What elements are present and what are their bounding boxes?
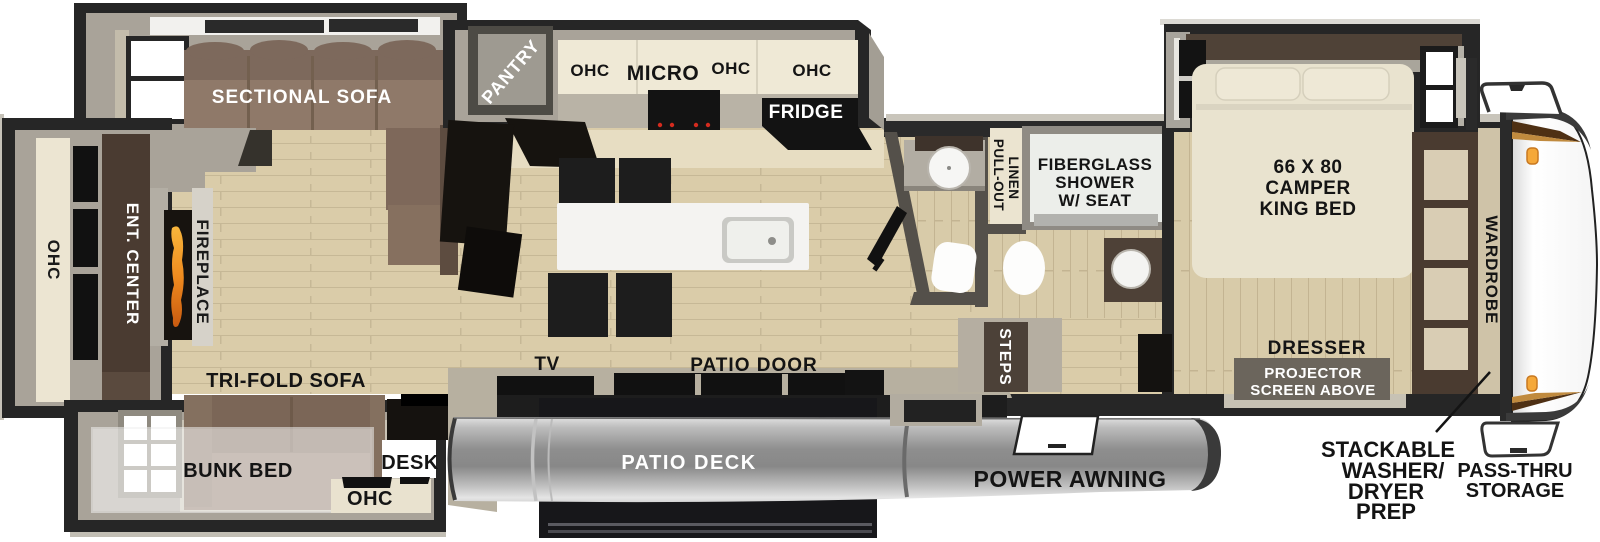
- svg-text:WARDROBE: WARDROBE: [1482, 215, 1501, 324]
- svg-text:STEPS: STEPS: [996, 328, 1013, 385]
- svg-text:W/ SEAT: W/ SEAT: [1058, 191, 1131, 210]
- svg-text:PULL-OUT: PULL-OUT: [991, 139, 1006, 211]
- svg-text:KING BED: KING BED: [1260, 199, 1357, 220]
- svg-text:MICRO: MICRO: [627, 62, 700, 85]
- svg-text:STORAGE: STORAGE: [1466, 480, 1565, 502]
- svg-text:POWER AWNING: POWER AWNING: [974, 466, 1167, 492]
- svg-text:SECTIONAL SOFA: SECTIONAL SOFA: [212, 87, 392, 108]
- svg-text:TV: TV: [534, 354, 559, 375]
- svg-text:FRIDGE: FRIDGE: [769, 102, 844, 123]
- svg-text:SHOWER: SHOWER: [1055, 173, 1135, 192]
- svg-text:DRESSER: DRESSER: [1268, 338, 1367, 359]
- svg-text:DESK: DESK: [381, 452, 439, 474]
- svg-text:BUNK BED: BUNK BED: [183, 460, 293, 482]
- svg-text:FIBERGLASS: FIBERGLASS: [1038, 155, 1153, 174]
- svg-text:OHC: OHC: [792, 61, 831, 80]
- svg-text:LINEN: LINEN: [1006, 157, 1021, 200]
- svg-text:OHC: OHC: [570, 61, 609, 80]
- svg-text:FIREPLACE: FIREPLACE: [193, 219, 212, 324]
- svg-text:OHC: OHC: [711, 59, 750, 78]
- svg-text:PROJECTOR: PROJECTOR: [1264, 365, 1362, 382]
- svg-text:OHC: OHC: [44, 240, 63, 281]
- svg-text:PREP: PREP: [1356, 499, 1416, 524]
- svg-text:TRI-FOLD SOFA: TRI-FOLD SOFA: [206, 370, 366, 392]
- svg-text:PASS-THRU: PASS-THRU: [1457, 460, 1572, 482]
- svg-text:CAMPER: CAMPER: [1265, 178, 1350, 199]
- svg-text:OHC: OHC: [347, 488, 393, 510]
- svg-text:SCREEN ABOVE: SCREEN ABOVE: [1250, 382, 1375, 399]
- svg-text:PATIO DOOR: PATIO DOOR: [690, 355, 818, 376]
- svg-text:ENT. CENTER: ENT. CENTER: [123, 203, 142, 325]
- svg-text:PATIO DECK: PATIO DECK: [621, 452, 756, 474]
- svg-text:66 X 80: 66 X 80: [1274, 157, 1343, 178]
